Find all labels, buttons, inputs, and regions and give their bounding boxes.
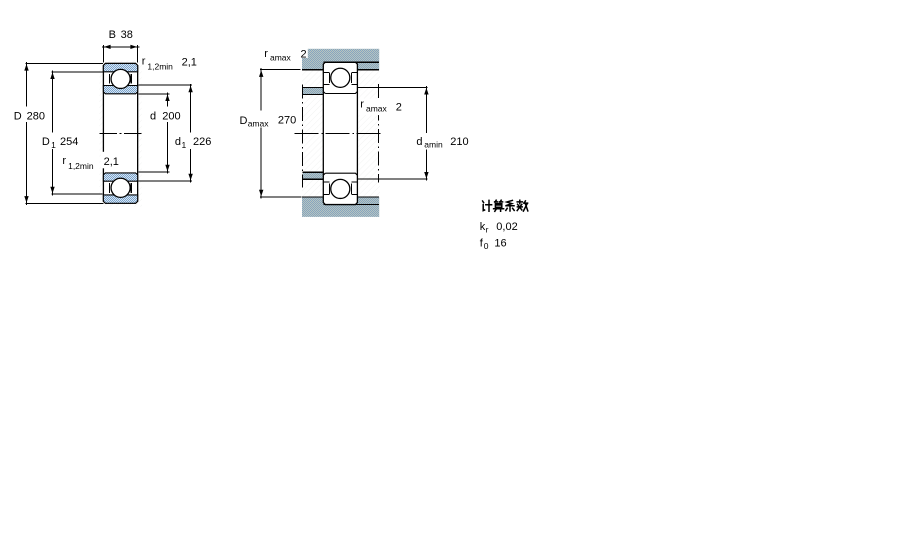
svg-text:254: 254	[60, 136, 78, 148]
svg-text:200: 200	[162, 110, 180, 122]
svg-text:r: r	[486, 225, 489, 235]
svg-text:16: 16	[494, 237, 506, 249]
svg-text:2,1: 2,1	[182, 57, 197, 69]
svg-text:0,02: 0,02	[496, 221, 517, 233]
svg-text:d: d	[150, 110, 156, 122]
svg-text:amax: amax	[248, 119, 270, 129]
svg-text:1: 1	[51, 140, 56, 150]
svg-text:2,1: 2,1	[104, 156, 119, 168]
svg-text:2: 2	[396, 102, 402, 114]
svg-text:D: D	[240, 115, 248, 127]
svg-text:D: D	[42, 136, 50, 148]
svg-text:amin: amin	[424, 140, 443, 150]
svg-text:1,2min: 1,2min	[68, 161, 94, 171]
svg-text:1: 1	[182, 140, 187, 150]
svg-text:2: 2	[301, 48, 307, 60]
svg-text:D: D	[14, 110, 22, 122]
svg-text:r: r	[142, 56, 146, 68]
svg-text:270: 270	[278, 114, 296, 126]
svg-text:d: d	[175, 136, 181, 148]
svg-text:amax: amax	[270, 52, 292, 62]
svg-text:r: r	[360, 98, 364, 110]
svg-text:1,2min: 1,2min	[147, 61, 173, 71]
svg-text:r: r	[62, 155, 66, 167]
svg-text:38: 38	[121, 29, 133, 41]
svg-text:amax: amax	[366, 104, 388, 114]
svg-text:B: B	[109, 29, 116, 41]
svg-text:226: 226	[193, 136, 211, 148]
svg-text:280: 280	[27, 110, 45, 122]
svg-text:210: 210	[450, 136, 468, 148]
svg-text:0: 0	[484, 241, 489, 251]
svg-text:r: r	[264, 48, 268, 60]
svg-text:d: d	[416, 136, 422, 148]
